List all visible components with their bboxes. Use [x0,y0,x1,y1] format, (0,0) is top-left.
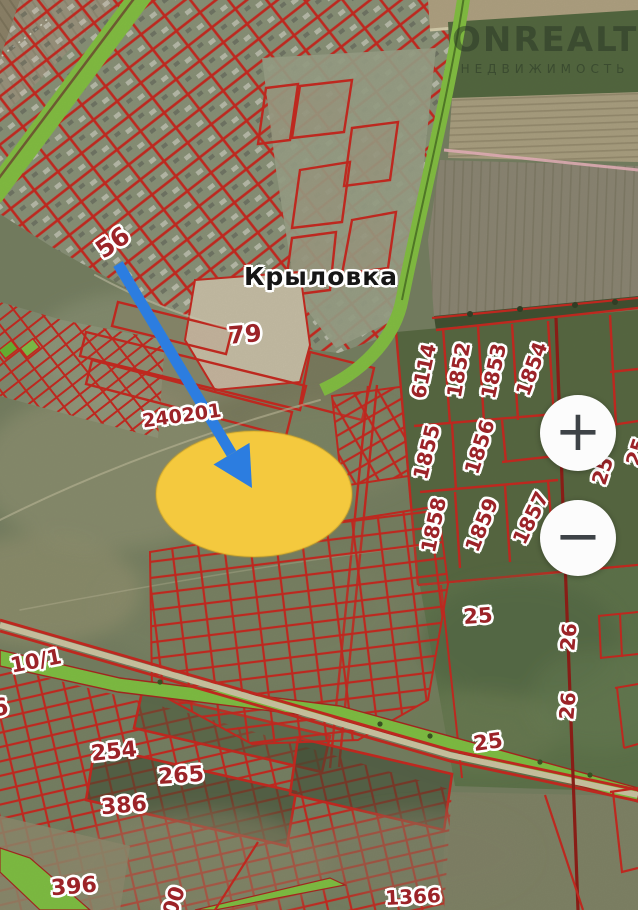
highlight-ellipse [156,431,352,557]
zoom-in-button[interactable]: + [540,395,616,471]
minus-icon: − [540,500,616,576]
zoom-out-button[interactable]: − [540,500,616,576]
map-view[interactable]: ONREALT НЕДВИЖИМОСТЬ 56 Крыловка 79 2402… [0,0,638,910]
plus-icon: + [540,395,616,471]
